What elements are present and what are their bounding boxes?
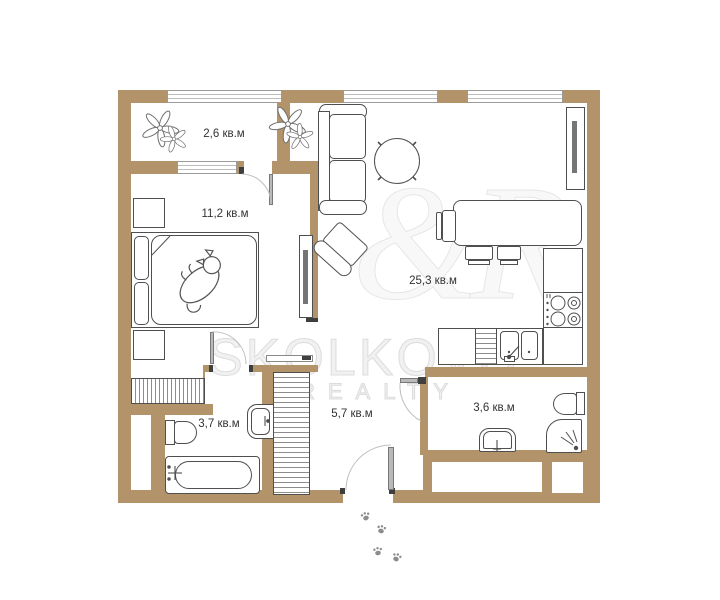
- bedroom-door-leaf: [210, 332, 214, 364]
- bathroom-sink-basin: [251, 408, 270, 435]
- kitchen-dishwasher: [475, 328, 497, 365]
- nightstand-top: [133, 198, 165, 228]
- balcony-door-arc: [242, 174, 271, 204]
- bathroom-west-wall: [151, 415, 165, 490]
- shower-room-west-wall: [420, 377, 428, 455]
- kitchen-cabinet-right-top: [543, 248, 583, 293]
- dining-table: [453, 200, 582, 246]
- duct-shaft-large: [432, 462, 542, 492]
- wall-right: [587, 90, 600, 503]
- bedroom-door-jamb-right: [249, 365, 253, 372]
- closet-top-tick: [302, 356, 311, 360]
- entry-door-arc: [346, 445, 391, 490]
- wall-top-a: [118, 90, 167, 103]
- balcony-window: [167, 90, 282, 103]
- sofa-cushion-1: [329, 114, 366, 159]
- living-tv-panel: [572, 121, 577, 173]
- dining-chair-left-seat: [442, 210, 456, 242]
- room-label-living: 25,3 кв.м: [409, 275, 457, 287]
- balcony-door-jamb: [239, 167, 244, 174]
- bedroom-wardrobe: [131, 378, 205, 404]
- bedroom-door-jamb-left: [209, 365, 213, 372]
- bedroom-south-wall-b: [249, 365, 318, 372]
- watermark-sub: REALTY: [299, 379, 461, 405]
- living-window-1: [343, 90, 438, 103]
- toilet-bowl: [174, 421, 197, 444]
- shower-tray: [546, 419, 582, 453]
- dining-chair-1-seat: [465, 246, 493, 260]
- dining-chair-1-back: [468, 260, 490, 265]
- kitchen-stove: [543, 292, 583, 328]
- wall-left: [118, 90, 131, 503]
- dining-chair-2-back: [500, 260, 518, 265]
- partition-end-cap: [306, 318, 318, 322]
- shower-room-door-leaf: [400, 378, 418, 383]
- room-label-balcony: 2,6 кв.м: [203, 128, 244, 140]
- bed-headboard-cushion-2: [134, 282, 149, 325]
- paw-prints-icon: [360, 511, 402, 563]
- room-label-bedroom: 11,2 кв.м: [202, 208, 249, 220]
- kitchen-cabinet-right-bottom: [543, 327, 583, 365]
- balcony-door-leaf: [269, 174, 273, 205]
- sofa-armrest-bottom: [319, 200, 367, 215]
- room-label-bathroom: 3,7 кв.м: [198, 418, 239, 430]
- wardrobe-bottom-wall: [131, 404, 213, 415]
- shower-room-top-wall: [425, 367, 587, 377]
- floor-plan: &R SKOLKOVO REALTY: [0, 0, 720, 600]
- kitchen-sink-basin-2: [521, 331, 538, 360]
- kitchen-counter-left: [438, 328, 476, 365]
- sofa-cushion-2: [329, 160, 366, 203]
- entry-door-jamb-left: [340, 488, 345, 494]
- bed-headboard-cushion-1: [134, 236, 149, 280]
- wall-top-b: [282, 90, 343, 103]
- entry-door-leaf: [388, 447, 394, 490]
- balcony-side-wall: [277, 102, 290, 161]
- wall-top-c: [438, 90, 467, 103]
- living-window-2: [467, 90, 563, 103]
- duct-shaft-small: [552, 462, 583, 493]
- round-table: [374, 138, 420, 184]
- room-label-shower-room: 3,6 кв.м: [473, 402, 514, 414]
- wc-toilet-bowl: [553, 393, 577, 415]
- bedroom-tv-panel: [303, 250, 308, 304]
- kitchen-sink-tray: [504, 356, 515, 362]
- shower-room-door-jamb: [418, 377, 426, 384]
- plant-icon: [141, 110, 193, 158]
- balcony-divider-window: [177, 161, 237, 174]
- bathtub-inner: [175, 461, 252, 489]
- hallway-closet: [273, 372, 310, 495]
- wall-top-d: [563, 90, 600, 103]
- dining-chair-2-seat: [497, 246, 521, 260]
- wc-sink-basin: [483, 431, 512, 449]
- room-label-hallway: 5,7 кв.м: [331, 408, 372, 420]
- balcony-divider-wall-a: [131, 161, 177, 174]
- wc-toilet-tank: [576, 392, 585, 415]
- bed-blanket: [151, 235, 257, 325]
- nightstand-bottom: [133, 330, 165, 360]
